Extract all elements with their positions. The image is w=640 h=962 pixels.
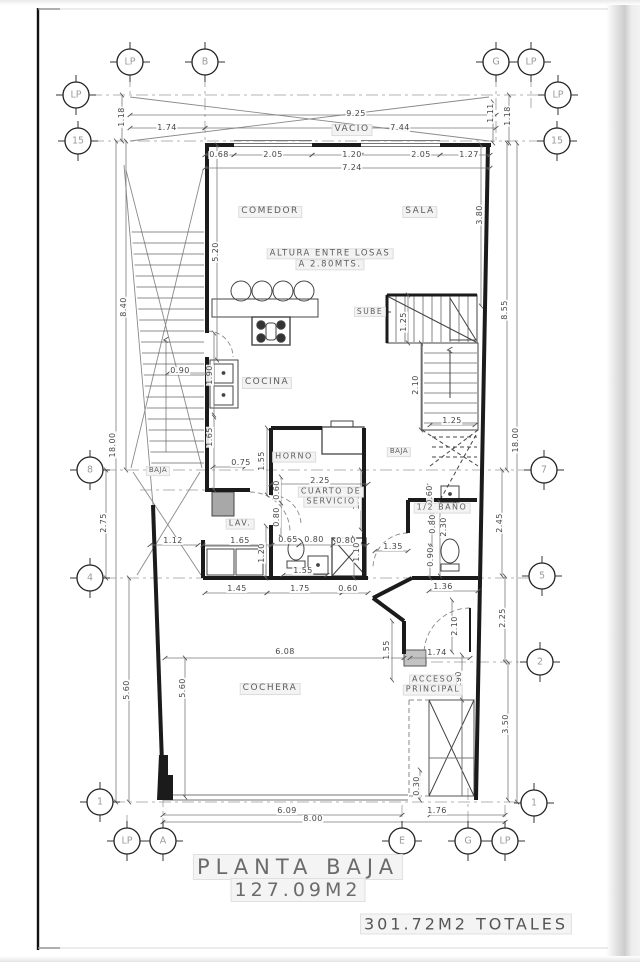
plan-area: 127.09M2 — [232, 879, 365, 901]
room-label: A 2.80MTS. — [296, 260, 363, 269]
dimension-label: 5.60 — [179, 677, 187, 698]
dimension-label: 2.05 — [410, 151, 431, 159]
room-label: BAJA — [147, 467, 169, 475]
room-label: SALA — [403, 207, 436, 217]
dimension-label: 1.12 — [162, 537, 183, 545]
dimension-label: 8.40 — [120, 296, 128, 317]
dimension-label: 3.80 — [476, 204, 484, 225]
grid-bubble-label: 15 — [551, 136, 563, 146]
page-edge-bottom — [0, 956, 640, 962]
dimension-label: 2.05 — [262, 151, 283, 159]
dimension-label: 8.55 — [501, 299, 509, 320]
grid-bubble-label: G — [492, 57, 499, 67]
dimension-label: 0.65 — [277, 536, 298, 544]
drawing-sheet: VACIOCOMEDORSALAALTURA ENTRE LOSASA 2.80… — [0, 0, 640, 962]
dimension-label: 2.10 — [451, 615, 459, 636]
dimension-label: 1.74 — [156, 124, 177, 132]
grid-bubble-label: 8 — [87, 465, 93, 475]
dimension-label: 6.08 — [274, 648, 295, 656]
grid-bubbles — [56, 42, 578, 861]
dimension-label: 2.75 — [100, 512, 108, 533]
dimension-label: 2.10 — [412, 374, 420, 395]
dimension-label: 8.00 — [302, 815, 323, 823]
room-label: PRINCIPAL — [404, 686, 462, 695]
dimension-label: 1.36 — [432, 583, 453, 591]
grid-bubble-label: G — [464, 836, 471, 846]
grid-bubble-label: B — [202, 57, 209, 67]
room-label: COMEDOR — [239, 207, 301, 217]
grid-bubble-label: LP — [552, 90, 563, 100]
room-label: BAJA — [388, 448, 410, 456]
grid-bubble-label: E — [399, 836, 405, 846]
grid-bubble-label: LP — [70, 90, 81, 100]
room-label: ALTURA ENTRE LOSAS — [268, 249, 393, 258]
grid-bubble-label: 5 — [539, 571, 545, 581]
dimension-label: 2.30 — [440, 516, 448, 537]
dimension-label: 1.18 — [504, 105, 512, 126]
dimension-label: 1.27 — [458, 151, 479, 159]
dimension-label: 0.90 — [169, 367, 190, 375]
dimension-label: 6.09 — [276, 807, 297, 815]
dimension-label: 7.44 — [389, 124, 410, 132]
grid-bubble-label: 1 — [97, 797, 103, 807]
dimension-label: 0.90 — [427, 546, 435, 567]
dimension-label: 18.00 — [109, 432, 117, 459]
dimension-label: 1.55 — [292, 567, 313, 575]
dimension-label: 1.35 — [382, 543, 403, 551]
dimension-label: 1.25 — [400, 311, 408, 332]
dimension-label: 1.25 — [441, 417, 462, 425]
grid-bubble-label: 1 — [531, 798, 537, 808]
dimension-label: 3.50 — [502, 713, 510, 734]
dimension-label: 1.11 — [487, 102, 495, 123]
grid-bubble-label: LP — [499, 836, 510, 846]
grid-bubble-label: LP — [525, 57, 536, 67]
dimension-label: 1.20 — [341, 151, 362, 159]
dimension-label: 1.65 — [229, 537, 250, 545]
dimension-label: 5.20 — [212, 241, 220, 262]
dimension-label: 1.76 — [426, 807, 447, 815]
total-area: 301.72M2 TOTALES — [361, 915, 571, 934]
walls — [153, 143, 491, 800]
dimension-label: 1.10 — [353, 541, 361, 562]
room-label: CUARTO DE — [299, 488, 363, 497]
dimension-label: 0.60 — [337, 585, 358, 593]
grid-bubble-label: LP — [124, 57, 135, 67]
dimension-label: 1.20 — [258, 542, 266, 563]
dimension-label: 1.90 — [206, 364, 214, 385]
room-label: VACIO — [332, 125, 371, 135]
dimension-label: 0.80 — [273, 506, 281, 527]
dimension-label: 0.80 — [303, 536, 324, 544]
room-label: SUBE — [355, 308, 385, 316]
dimension-label: 0.68 — [208, 151, 229, 159]
page-edge-top — [0, 0, 640, 5]
dimension-label: 2.25 — [309, 477, 330, 485]
dimension-label: 1.75 — [289, 585, 310, 593]
dimension-label: 1.55 — [383, 639, 391, 660]
grid-bubble-label: A — [160, 836, 167, 846]
dimension-label: 7.24 — [341, 164, 362, 172]
grid-bubble-label: LP — [121, 836, 132, 846]
dimension-label: 9.25 — [345, 110, 366, 118]
dimension-label: 1.55 — [258, 450, 266, 471]
dimension-label: 1.74 — [426, 649, 447, 657]
room-label: SERVICIO — [304, 498, 357, 507]
dimension-label: 1.65 — [206, 426, 214, 447]
dimension-label: 2.45 — [496, 512, 504, 533]
plan-title: PLANTA BAJA — [194, 855, 402, 879]
grid-bubble-label: 7 — [541, 465, 547, 475]
room-label: COCINA — [243, 378, 291, 388]
dimension-label: 5.60 — [123, 679, 131, 700]
dimension-label: 0.30 — [413, 775, 421, 796]
grid-bubble-label: 15 — [72, 136, 84, 146]
dimension-label: 0.80 — [429, 513, 437, 534]
dimension-label: 18.00 — [512, 427, 520, 454]
grid-bubble-label: 4 — [87, 573, 93, 583]
page-edge-right — [606, 0, 640, 962]
dimension-label: 1.45 — [226, 585, 247, 593]
dimension-label: 2.25 — [499, 607, 507, 628]
dimension-label: 0.60 — [273, 479, 281, 500]
room-label: LAV. — [227, 520, 254, 529]
room-label: HORNO — [273, 453, 315, 462]
grid-bubble-label: 2 — [537, 657, 543, 667]
room-label: 1/2 BAÑO — [415, 504, 470, 513]
dimension-label: 1.18 — [118, 106, 126, 127]
room-label: COCHERA — [241, 684, 300, 694]
room-label: ACCESO — [410, 676, 456, 685]
dimension-label: 0.75 — [230, 459, 251, 467]
